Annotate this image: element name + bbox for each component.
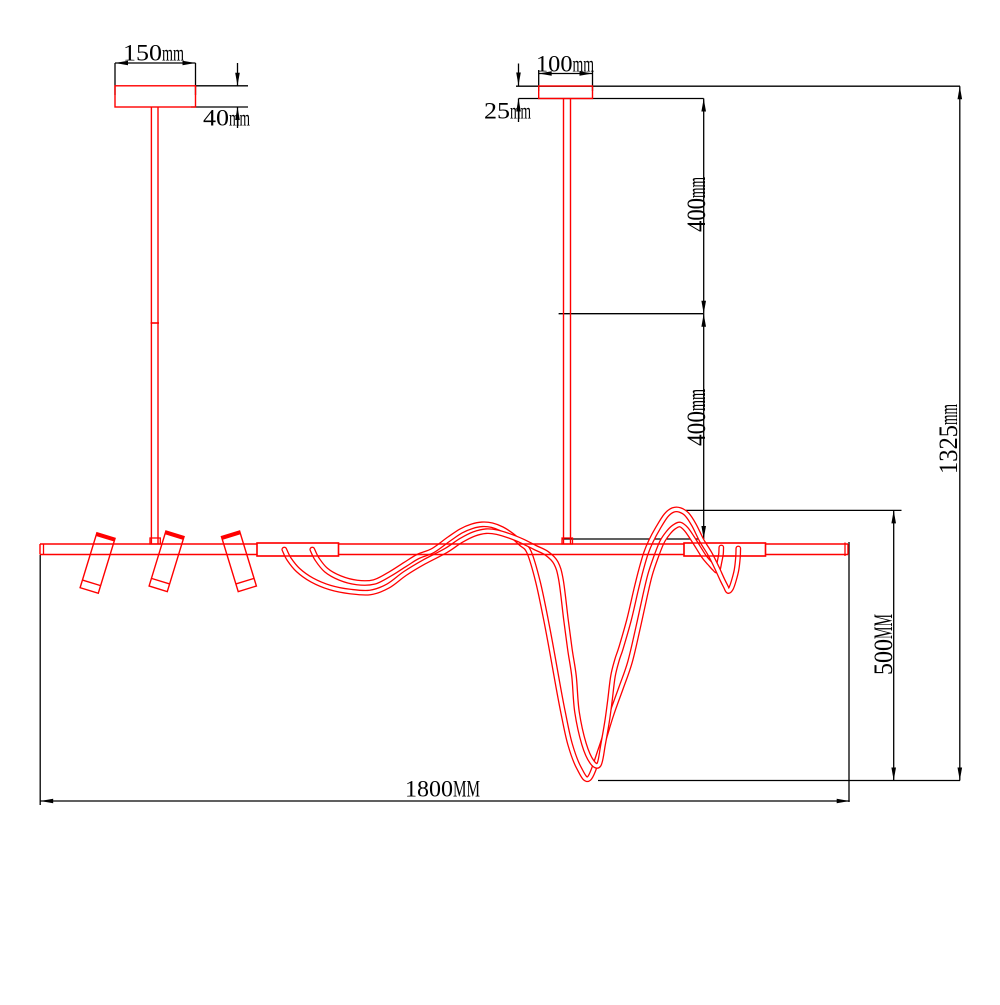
svg-text:1800MM: 1800MM [405,777,480,802]
svg-text:500MM: 500MM [869,614,898,675]
svg-text:400mm: 400mm [682,177,711,232]
svg-text:40mm: 40mm [203,106,250,131]
svg-text:150mm: 150mm [123,41,184,66]
svg-text:100mm: 100mm [536,52,594,77]
svg-text:1325mm: 1325mm [934,404,963,474]
svg-text:400mm: 400mm [682,389,711,446]
svg-text:25mm: 25mm [484,99,531,124]
